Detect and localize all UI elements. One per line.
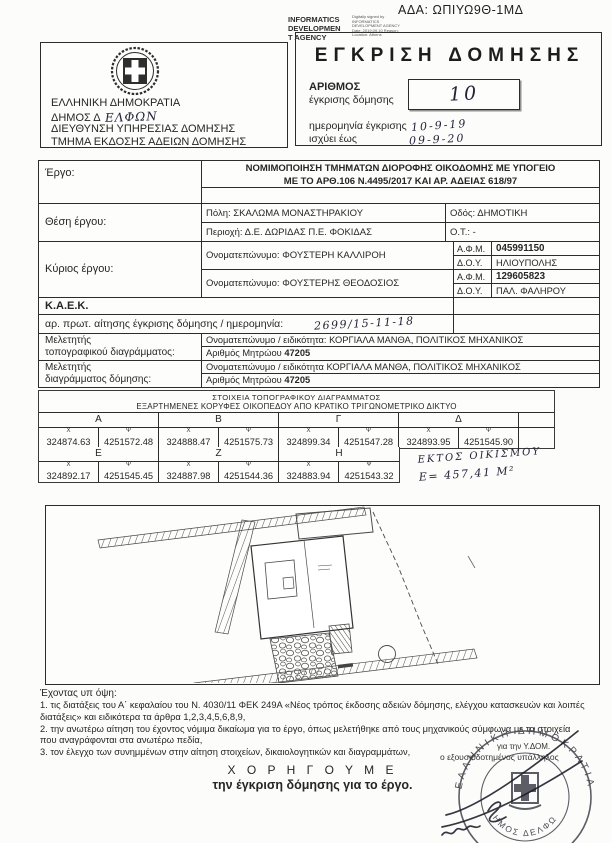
approval-number-value: 10	[448, 82, 479, 106]
protocol-value: 2699/15-11-18	[314, 314, 415, 332]
doy-value: ΠΑΛ. ΦΑΛΗΡΟΥ	[492, 286, 599, 296]
axis-symbol-x: Χ	[399, 428, 458, 434]
coord-x: 324887.98	[159, 471, 218, 481]
project-description: ΝΟΜΙΜΟΠΟΙΗΣΗ ΤΜΗΜΑΤΩΝ ΔΙΟΡΟΦΗΣ ΟΙΚΟΔΟΜΗΣ…	[202, 161, 599, 188]
approval-number-field: 10	[408, 79, 520, 110]
digital-signature-agency: INFORMATICS DEVELOPMEN T AGENCY	[288, 15, 352, 42]
coat-of-arms-icon	[109, 45, 161, 97]
scanned-building-permit-document: ΑΔΑ: ΩΠΙΥΩ9Θ-1ΜΔ INFORMATICS DEVELOPMEN …	[0, 0, 612, 843]
owner-label: Κύριος έργου:	[39, 242, 202, 297]
doy-value: ΗΛΙΟΥΠΟΛΗΣ	[492, 258, 599, 268]
coordinates-title-line2: ΕΞΑΡΤΗΜΕΝΕΣ ΚΟΡΥΦΕΣ ΟΙΚΟΠΕΔΟΥ ΑΠΟ ΚΡΑΤΙΚ…	[39, 402, 554, 411]
surveyor-topo-registry: Αριθμός Μητρώου 47205	[202, 347, 599, 359]
point-label: Ζ	[159, 447, 279, 461]
surveyor-topo-name: Ονοματεπώνυμο / ειδικότητα: ΚΟΡΓΙΑΛΑ ΜΑΝ…	[202, 334, 599, 347]
axis-symbol-y: Ψ	[219, 462, 278, 468]
registry-value: 47205	[284, 348, 310, 358]
axis-symbol-x: Χ	[159, 428, 218, 434]
surveyor-label-line: Μελετητής	[45, 362, 197, 374]
doy-label: Δ.Ο.Υ.	[454, 256, 492, 269]
digital-signature-agency-line: T AGENCY	[288, 33, 352, 42]
axis-symbol-y: Ψ	[99, 462, 158, 468]
coord-y: 4251544.36	[219, 471, 278, 481]
point-label: Η	[279, 447, 399, 461]
table-row-owner: Κύριος έργου: Ονοματεπώνυμο: ΦΟΥΣΤΕΡΗ ΚΑ…	[39, 241, 599, 297]
approval-number-label: ΑΡΙΘΜΟΣ	[309, 81, 360, 93]
afm-label: Α.Φ.Μ.	[454, 270, 492, 283]
coordinates-header-row-2: Ε Ζ Η	[39, 447, 399, 462]
coord-x: 324899.34	[279, 437, 338, 447]
site-plan-drawing	[46, 506, 599, 683]
coordinates-value-row-2: Χ324892.17 Ψ4251545.45 Χ324887.98 Ψ42515…	[39, 462, 399, 482]
owner-tax-block: Α.Φ.Μ. 129605823 Δ.Ο.Υ. ΠΑΛ. ΦΑΛΗΡΟΥ	[454, 270, 599, 297]
registry-label: Αριθμός Μητρώου	[206, 348, 282, 358]
axis-symbol-x: Χ	[159, 462, 218, 468]
coord-y: 4251547.28	[339, 437, 398, 447]
surveyor-label-line: Μελετητής	[45, 335, 197, 347]
axis-symbol-y: Ψ	[219, 428, 278, 434]
approval-date-label: ημερομηνία έγκρισης	[309, 120, 407, 132]
point-label: Β	[159, 413, 279, 427]
axis-symbol-y: Ψ	[99, 428, 158, 434]
axis-symbol-y: Ψ	[459, 428, 518, 434]
issuer-republic: ΕΛΛΗΝΙΚΗ ΔΗΜΟΚΡΑΤΙΑ	[51, 97, 180, 109]
coord-x: 324883.94	[279, 471, 338, 481]
surveyor-diagram-label: Μελετητής διαγράμματος δόμησης:	[39, 361, 202, 387]
approval-number-sublabel: έγκρισης δόμησης	[309, 94, 394, 106]
issuer-municipality: ΔΗΜΟΣ Δ ΕΛΦΩΝ	[51, 110, 158, 124]
site-plan-box	[45, 505, 600, 685]
handwritten-signature	[440, 715, 605, 843]
surveyor-diagram-registry: Αριθμός Μητρώου 47205	[202, 374, 599, 386]
owner-name: Ονοματεπώνυμο: ΦΟΥΣΤΕΡΗΣ ΘΕΟΔΟΣΙΟΣ	[202, 270, 454, 297]
surveyor-label-line: διαγράμματος δόμησης:	[45, 374, 197, 386]
area-note-line2: Ε= 457,41 Μ²	[418, 464, 515, 484]
table-row-surveyor-diagram: Μελετητής διαγράμματος δόμησης: Ονοματεπ…	[39, 360, 599, 387]
digital-signature-details: Digitally signed by INFORMATICS DEVELOPM…	[352, 15, 410, 38]
location-label: Θέση έργου:	[39, 204, 202, 241]
footer-intro: Έχοντας υπ όψη:	[40, 688, 585, 699]
registry-value: 47205	[284, 375, 310, 385]
issuer-department: ΤΜΗΜΑ ΕΚΔΟΣΗΣ ΑΔΕΙΩΝ ΔΟΜΗΣΗΣ	[51, 136, 246, 148]
table-row-surveyor-topo: Μελετητής τοπογραφικού διαγράμματος: Ονο…	[39, 333, 599, 360]
ada-number: ΑΔΑ: ΩΠΙΥΩ9Θ-1ΜΔ	[398, 3, 598, 17]
project-description-line: ΝΟΜΙΜΟΠΟΙΗΣΗ ΤΜΗΜΑΤΩΝ ΔΙΟΡΟΦΗΣ ΟΙΚΟΔΟΜΗΣ…	[202, 162, 599, 175]
project-description-line: ΜΕ ΤΟ ΑΡΘ.106 Ν.4495/2017 ΚΑΙ ΑΡ. ΑΔΕΙΑΣ…	[202, 175, 599, 188]
project-empty-row	[202, 188, 599, 203]
table-row-protocol: αρ. πρωτ. αίτησης έγκρισης δόμησης / ημε…	[39, 314, 599, 333]
area-note-line1: ΕΚΤΟΣ ΟΙΚΙΣΜΟΥ	[417, 446, 541, 466]
axis-symbol-x: Χ	[279, 462, 338, 468]
protocol-label: αρ. πρωτ. αίτησης έγκρισης δόμησης / ημε…	[45, 318, 283, 330]
axis-symbol-x: Χ	[39, 462, 98, 468]
table-row-project: Έργο: ΝΟΜΙΜΟΠΟΙΗΣΗ ΤΜΗΜΑΤΩΝ ΔΙΟΡΟΦΗΣ ΟΙΚ…	[39, 161, 599, 203]
table-row-location: Θέση έργου: Πόλη: ΣΚΑΛΩΜΑ ΜΟΝΑΣΤΗΡΑΚΙΟΥ …	[39, 203, 599, 241]
table-row-kaek: Κ.Α.Ε.Κ.	[39, 297, 599, 314]
location-street: Οδός: ΔΗΜΟΤΙΚΗ	[446, 207, 599, 220]
coordinates-spare-column	[519, 413, 554, 427]
surveyor-diagram-name: Ονοματεπώνυμο / ειδικότητα ΚΟΡΓΙΑΛΑ ΜΑΝΘ…	[202, 361, 599, 374]
digital-signature-agency-line: INFORMATICS	[288, 15, 352, 24]
surveyor-label-line: τοπογραφικού διαγράμματος:	[45, 347, 197, 359]
afm-value: 129605823	[492, 271, 599, 282]
issuer-block: ΕΛΛΗΝΙΚΗ ΔΗΜΟΚΡΑΤΙΑ ΔΗΜΟΣ Δ ΕΛΦΩΝ ΔΙΕΥΘΥ…	[40, 42, 288, 148]
coordinates-header-row-1: Α Β Γ Δ	[39, 413, 554, 428]
afm-label: Α.Φ.Μ.	[454, 242, 492, 255]
point-label: Γ	[279, 413, 399, 427]
axis-symbol-y: Ψ	[339, 462, 399, 468]
coord-y: 4251575.73	[219, 437, 278, 447]
axis-symbol-y: Ψ	[339, 428, 398, 434]
coord-x: 324893.95	[399, 437, 458, 447]
valid-until-label: ισχύει έως	[309, 133, 357, 145]
surveyor-topo-label: Μελετητής τοπογραφικού διαγράμματος:	[39, 334, 202, 360]
protocol-empty-cell	[454, 315, 599, 333]
axis-symbol-x: Χ	[279, 428, 338, 434]
coord-x: 324888.47	[159, 437, 218, 447]
doy-label: Δ.Ο.Υ.	[454, 284, 492, 297]
location-area: Περιοχή: Δ.Ε. ΔΩΡΙΔΑΣ Π.Ε. ΦΟΚΙΔΑΣ	[202, 223, 446, 241]
coord-x: 324874.63	[39, 437, 98, 447]
owner-name: Ονοματεπώνυμο: ΦΟΥΣΤΕΡΗ ΚΑΛΛΙΡΟΗ	[202, 242, 454, 269]
axis-symbol-x: Χ	[39, 428, 98, 434]
issuer-directorate: ΔΙΕΥΘΥΝΣΗ ΥΠΗΡΕΣΙΑΣ ΔΟΜΗΣΗΣ	[51, 123, 235, 135]
protocol-cell: αρ. πρωτ. αίτησης έγκρισης δόμησης / ημε…	[39, 315, 454, 333]
coord-y: 4251572.48	[99, 437, 158, 447]
coord-y: 4251545.45	[99, 471, 158, 481]
point-label: Δ	[399, 413, 519, 427]
point-label: Ε	[39, 447, 159, 461]
project-label: Έργο:	[39, 161, 202, 203]
location-city: Πόλη: ΣΚΑΛΩΜΑ ΜΟΝΑΣΤΗΡΑΚΙΟΥ	[202, 204, 446, 222]
coordinates-title-line1: ΣΤΟΙΧΕΙΑ ΤΟΠΟΓΡΑΦΙΚΟΥ ΔΙΑΓΡΑΜΜΑΤΟΣ	[39, 393, 554, 402]
point-label: Α	[39, 413, 159, 427]
project-info-table: Έργο: ΝΟΜΙΜΟΠΟΙΗΣΗ ΤΜΗΜΑΤΩΝ ΔΙΟΡΟΦΗΣ ΟΙΚ…	[38, 160, 600, 388]
registry-label: Αριθμός Μητρώου	[206, 375, 282, 385]
kaek-empty-cell	[454, 298, 599, 314]
coordinates-table: ΣΤΟΙΧΕΙΑ ΤΟΠΟΓΡΑΦΙΚΟΥ ΔΙΑΓΡΑΜΜΑΤΟΣ ΕΞΑΡΤ…	[38, 390, 555, 449]
coord-x: 324892.17	[39, 471, 98, 481]
document-title: ΕΓΚΡΙΣΗ ΔΟΜΗΣΗΣ	[296, 45, 603, 67]
valid-until-value: 09-9-20	[409, 130, 465, 148]
coordinates-table-title: ΣΤΟΙΧΕΙΑ ΤΟΠΟΓΡΑΦΙΚΟΥ ΔΙΑΓΡΑΜΜΑΤΟΣ ΕΞΑΡΤ…	[39, 391, 554, 413]
owner-tax-block: Α.Φ.Μ. 045991150 Δ.Ο.Υ. ΗΛΙΟΥΠΟΛΗΣ	[454, 242, 599, 269]
coord-y: 4251543.32	[339, 471, 399, 481]
kaek-label: Κ.Α.Ε.Κ.	[39, 298, 454, 314]
digital-signature-agency-line: DEVELOPMEN	[288, 24, 352, 33]
location-ot: Ο.Τ.: -	[446, 226, 599, 239]
coordinates-table-lower: Ε Ζ Η Χ324892.17 Ψ4251545.45 Χ324887.98 …	[38, 447, 400, 483]
afm-value: 045991150	[492, 243, 599, 254]
approval-header-box: ΕΓΚΡΙΣΗ ΔΟΜΗΣΗΣ ΑΡΙΘΜΟΣ έγκρισης δόμησης…	[295, 32, 602, 146]
